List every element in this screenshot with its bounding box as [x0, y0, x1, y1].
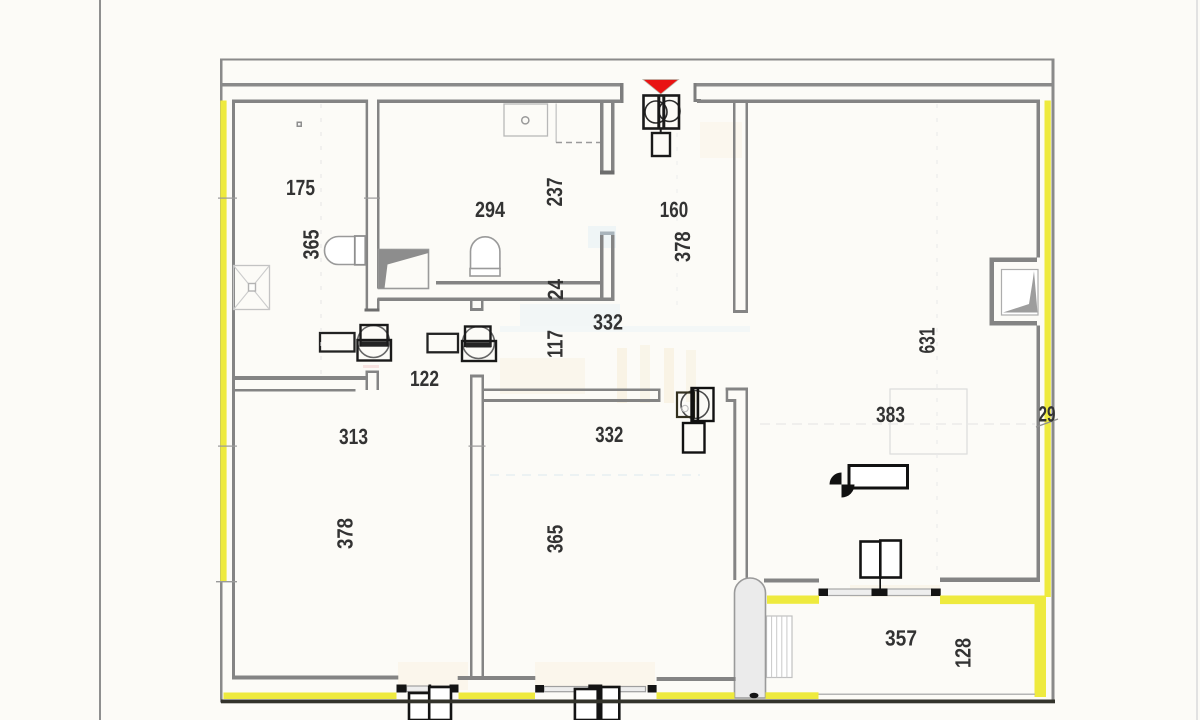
svg-text:294: 294 — [475, 197, 506, 222]
svg-text:24: 24 — [543, 278, 568, 300]
svg-text:332: 332 — [595, 422, 623, 447]
svg-text:378: 378 — [670, 231, 695, 262]
svg-text:128: 128 — [951, 638, 976, 668]
svg-text:357: 357 — [885, 626, 917, 651]
svg-text:175: 175 — [286, 175, 315, 200]
svg-text:160: 160 — [660, 197, 688, 222]
svg-text:383: 383 — [876, 402, 905, 427]
svg-text:29: 29 — [1039, 402, 1056, 427]
svg-text:365: 365 — [543, 525, 568, 553]
svg-text:631: 631 — [915, 328, 940, 354]
svg-text:122: 122 — [410, 366, 439, 391]
svg-text:378: 378 — [333, 518, 358, 549]
svg-text:117: 117 — [543, 330, 568, 358]
svg-text:313: 313 — [339, 424, 368, 449]
svg-text:332: 332 — [593, 310, 623, 335]
svg-text:237: 237 — [542, 178, 567, 207]
svg-text:365: 365 — [299, 230, 324, 260]
